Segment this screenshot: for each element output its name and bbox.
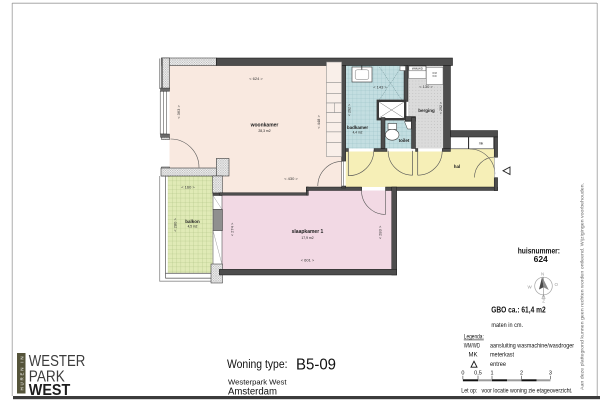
svg-text:Woning type:: Woning type: bbox=[227, 359, 288, 371]
svg-text:624: 624 bbox=[534, 254, 548, 264]
svg-text:< 601 >: < 601 > bbox=[301, 257, 315, 262]
svg-text:badkamer: badkamer bbox=[347, 125, 369, 130]
svg-text:1: 1 bbox=[490, 371, 493, 377]
svg-text:WM: WM bbox=[432, 71, 437, 75]
svg-text:toilet: toilet bbox=[399, 138, 410, 143]
svg-text:meterkast: meterkast bbox=[490, 352, 514, 358]
svg-text:N: N bbox=[541, 272, 544, 277]
svg-text:0,5: 0,5 bbox=[474, 371, 482, 377]
svg-text:maten in cm.: maten in cm. bbox=[491, 323, 523, 329]
svg-text:balkon: balkon bbox=[185, 219, 200, 224]
svg-text:HUREN IN: HUREN IN bbox=[20, 357, 25, 391]
svg-text:B5-09: B5-09 bbox=[296, 357, 336, 374]
svg-text:0: 0 bbox=[461, 371, 464, 377]
svg-text:hal: hal bbox=[454, 164, 461, 169]
svg-text:slaapkamer 1: slaapkamer 1 bbox=[292, 229, 324, 235]
svg-text:< 160 >: < 160 > bbox=[181, 184, 195, 189]
svg-text:entree: entree bbox=[490, 362, 507, 368]
svg-text:GBO ca.: 61,4 m2: GBO ca.: 61,4 m2 bbox=[491, 306, 546, 315]
svg-text:4,4 m2: 4,4 m2 bbox=[353, 131, 363, 135]
svg-text:Legenda:: Legenda: bbox=[464, 335, 484, 341]
svg-text:< 283 >: < 283 > bbox=[378, 225, 383, 239]
svg-text:4,5 m2: 4,5 m2 bbox=[188, 225, 198, 229]
svg-text:MK: MK bbox=[469, 352, 478, 358]
svg-text:< 292 >: < 292 > bbox=[439, 102, 443, 114]
svg-text:Amsterdam: Amsterdam bbox=[228, 387, 277, 398]
svg-text:< 274 >: < 274 > bbox=[230, 222, 235, 236]
svg-text:WM|WD: WM|WD bbox=[412, 67, 424, 71]
svg-text:28,3 m2: 28,3 m2 bbox=[258, 129, 270, 133]
svg-text:mk: mk bbox=[479, 142, 484, 146]
svg-text:Z: Z bbox=[542, 299, 545, 304]
svg-text:woonkamer: woonkamer bbox=[250, 123, 279, 129]
svg-text:voor locatie woning zie etageo: voor locatie woning zie etageoverzicht. bbox=[482, 387, 573, 394]
svg-text:< 624 >: < 624 > bbox=[249, 76, 263, 81]
svg-text:WEST: WEST bbox=[29, 382, 71, 399]
svg-text:W: W bbox=[528, 285, 533, 290]
svg-text:< 448 >: < 448 > bbox=[316, 115, 321, 129]
svg-text:2: 2 bbox=[520, 371, 523, 377]
svg-text:< 430 >: < 430 > bbox=[284, 176, 298, 181]
svg-text:3: 3 bbox=[549, 371, 552, 377]
svg-text:< 292 >: < 292 > bbox=[347, 104, 351, 116]
svg-text:aansluiting wasmachine/wasdrog: aansluiting wasmachine/wasdroger bbox=[490, 343, 574, 349]
svg-text:< 143 >: < 143 > bbox=[373, 85, 387, 90]
svg-text:Westerpark West: Westerpark West bbox=[228, 378, 287, 387]
svg-text:Let op:: Let op: bbox=[461, 387, 477, 394]
svg-text:< 130 >: < 130 > bbox=[419, 84, 433, 89]
svg-text:WD: WD bbox=[432, 74, 436, 78]
svg-text:17,9 m2: 17,9 m2 bbox=[301, 236, 313, 240]
svg-text:< 363 >: < 363 > bbox=[176, 105, 181, 119]
svg-text:berging: berging bbox=[418, 108, 435, 113]
svg-text:O: O bbox=[555, 282, 559, 287]
svg-text:Aan deze plattegrond kunnen ge: Aan deze plattegrond kunnen geen rechten… bbox=[580, 183, 585, 390]
svg-text:< 280 >: < 280 > bbox=[173, 218, 178, 232]
svg-text:WM/WD: WM/WD bbox=[464, 343, 481, 349]
